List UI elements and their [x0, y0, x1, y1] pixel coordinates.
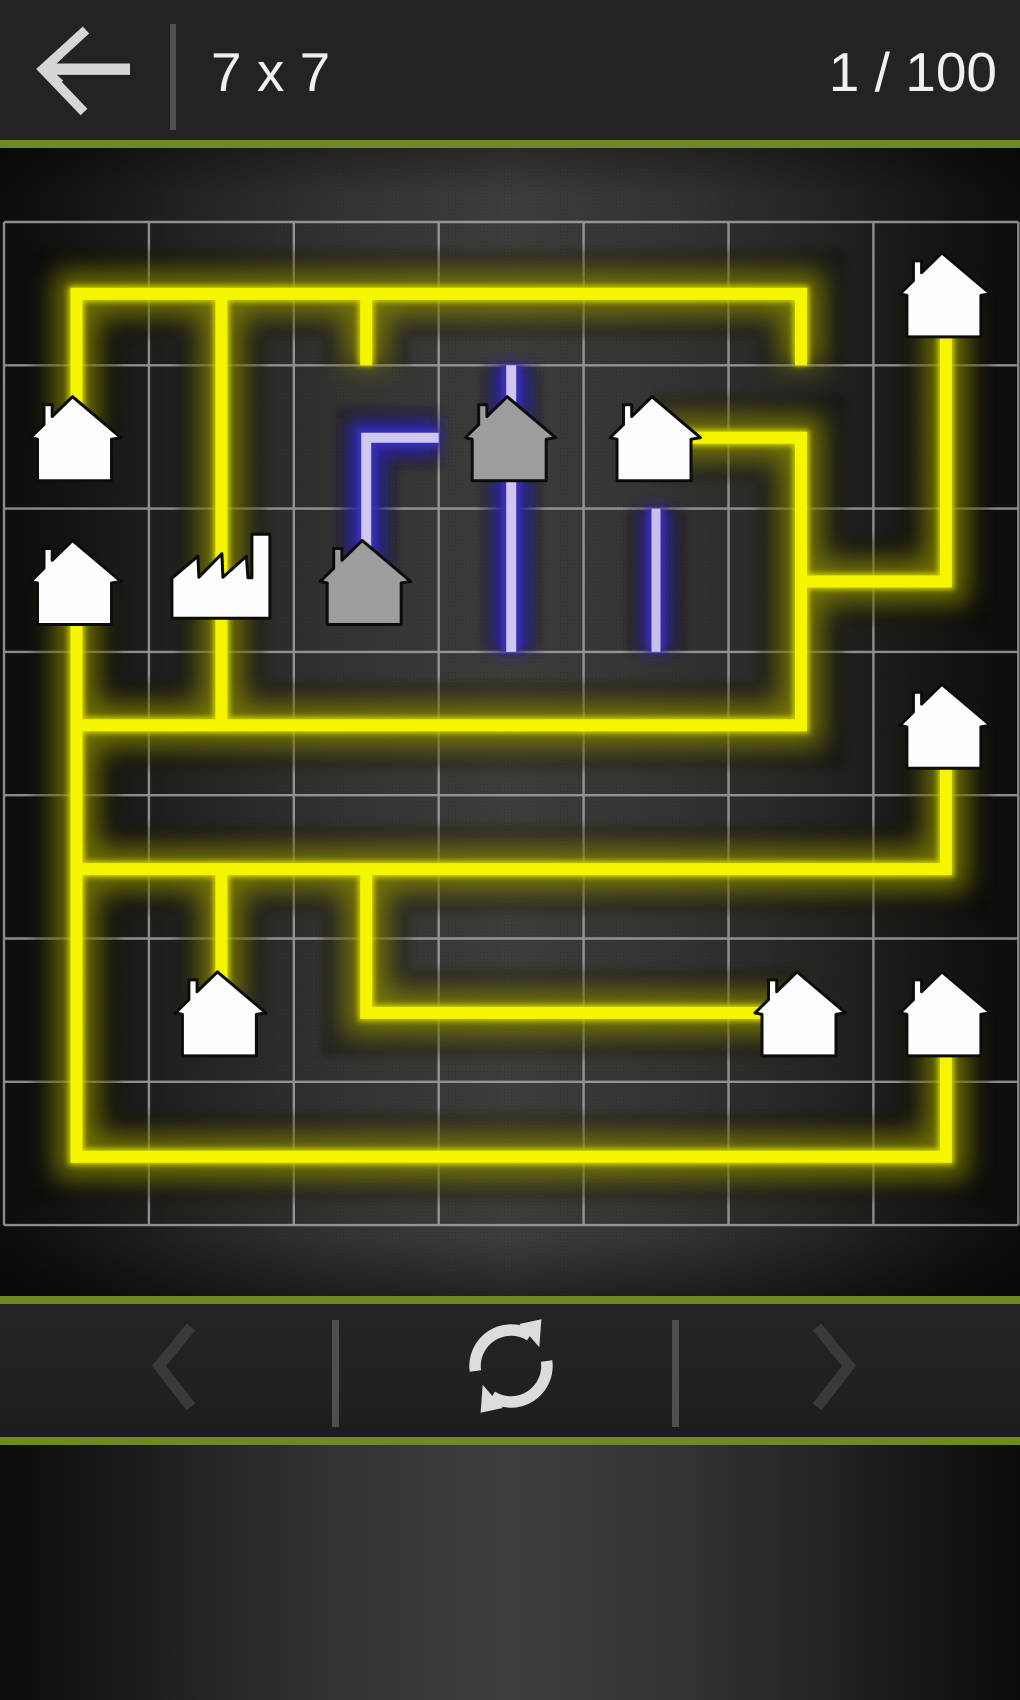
svg-text:1 / 100: 1 / 100: [829, 41, 997, 103]
svg-text:7 x 7: 7 x 7: [211, 41, 330, 103]
